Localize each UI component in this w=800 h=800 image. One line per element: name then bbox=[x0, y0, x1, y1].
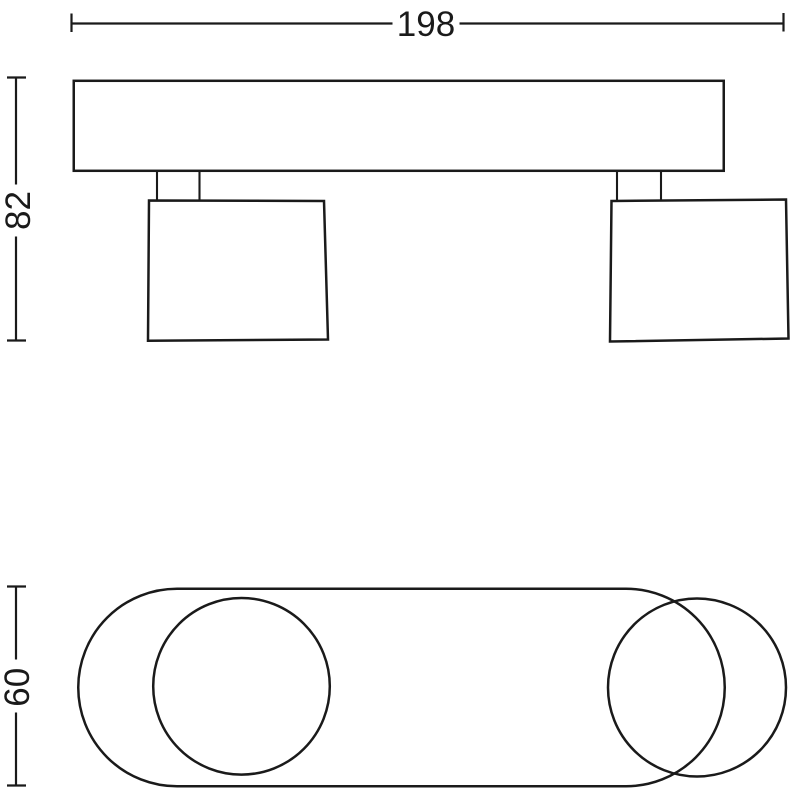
svg-text:198: 198 bbox=[397, 5, 455, 44]
svg-text:82: 82 bbox=[0, 191, 38, 230]
svg-text:60: 60 bbox=[0, 668, 37, 707]
